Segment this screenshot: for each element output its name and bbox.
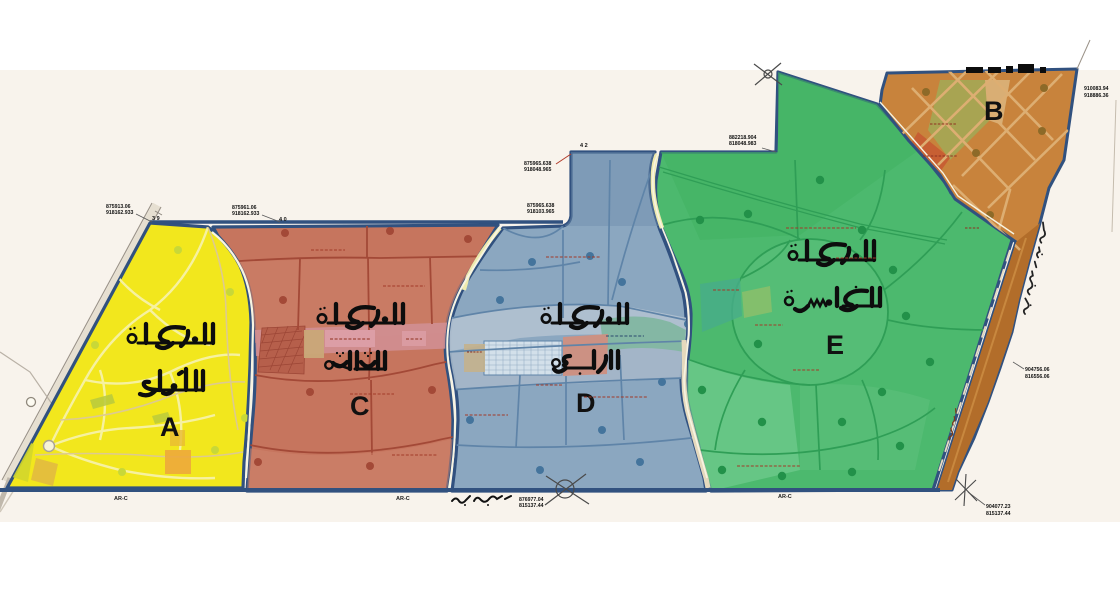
svg-text:918048.965: 918048.965 (524, 167, 552, 173)
svg-text:818048.983: 818048.983 (729, 141, 757, 147)
svg-text:918886.36: 918886.36 (1084, 93, 1109, 99)
svg-text:918162.933: 918162.933 (232, 211, 260, 217)
svg-text:A: A (160, 412, 180, 442)
svg-text:815137.44: 815137.44 (519, 503, 544, 509)
svg-text:815137.44: 815137.44 (986, 511, 1011, 517)
svg-text:AR-C: AR-C (778, 494, 792, 500)
svg-text:904756.06: 904756.06 (1025, 367, 1050, 373)
svg-text:918103.965: 918103.965 (527, 209, 555, 215)
svg-text:3 9: 3 9 (152, 216, 160, 222)
svg-text:4 0: 4 0 (279, 217, 287, 223)
svg-text:918162.933: 918162.933 (106, 210, 134, 216)
svg-text:4 2: 4 2 (580, 143, 588, 149)
svg-text:C: C (350, 391, 370, 421)
svg-text:816556.06: 816556.06 (1025, 374, 1050, 380)
svg-text:E: E (826, 330, 844, 360)
svg-text:B: B (984, 96, 1004, 126)
svg-text:910083.94: 910083.94 (1084, 86, 1109, 92)
svg-text:D: D (576, 388, 596, 418)
svg-text:AR-C: AR-C (114, 496, 128, 502)
svg-text:904077.23: 904077.23 (986, 504, 1011, 510)
svg-text:AR-C: AR-C (396, 496, 410, 502)
